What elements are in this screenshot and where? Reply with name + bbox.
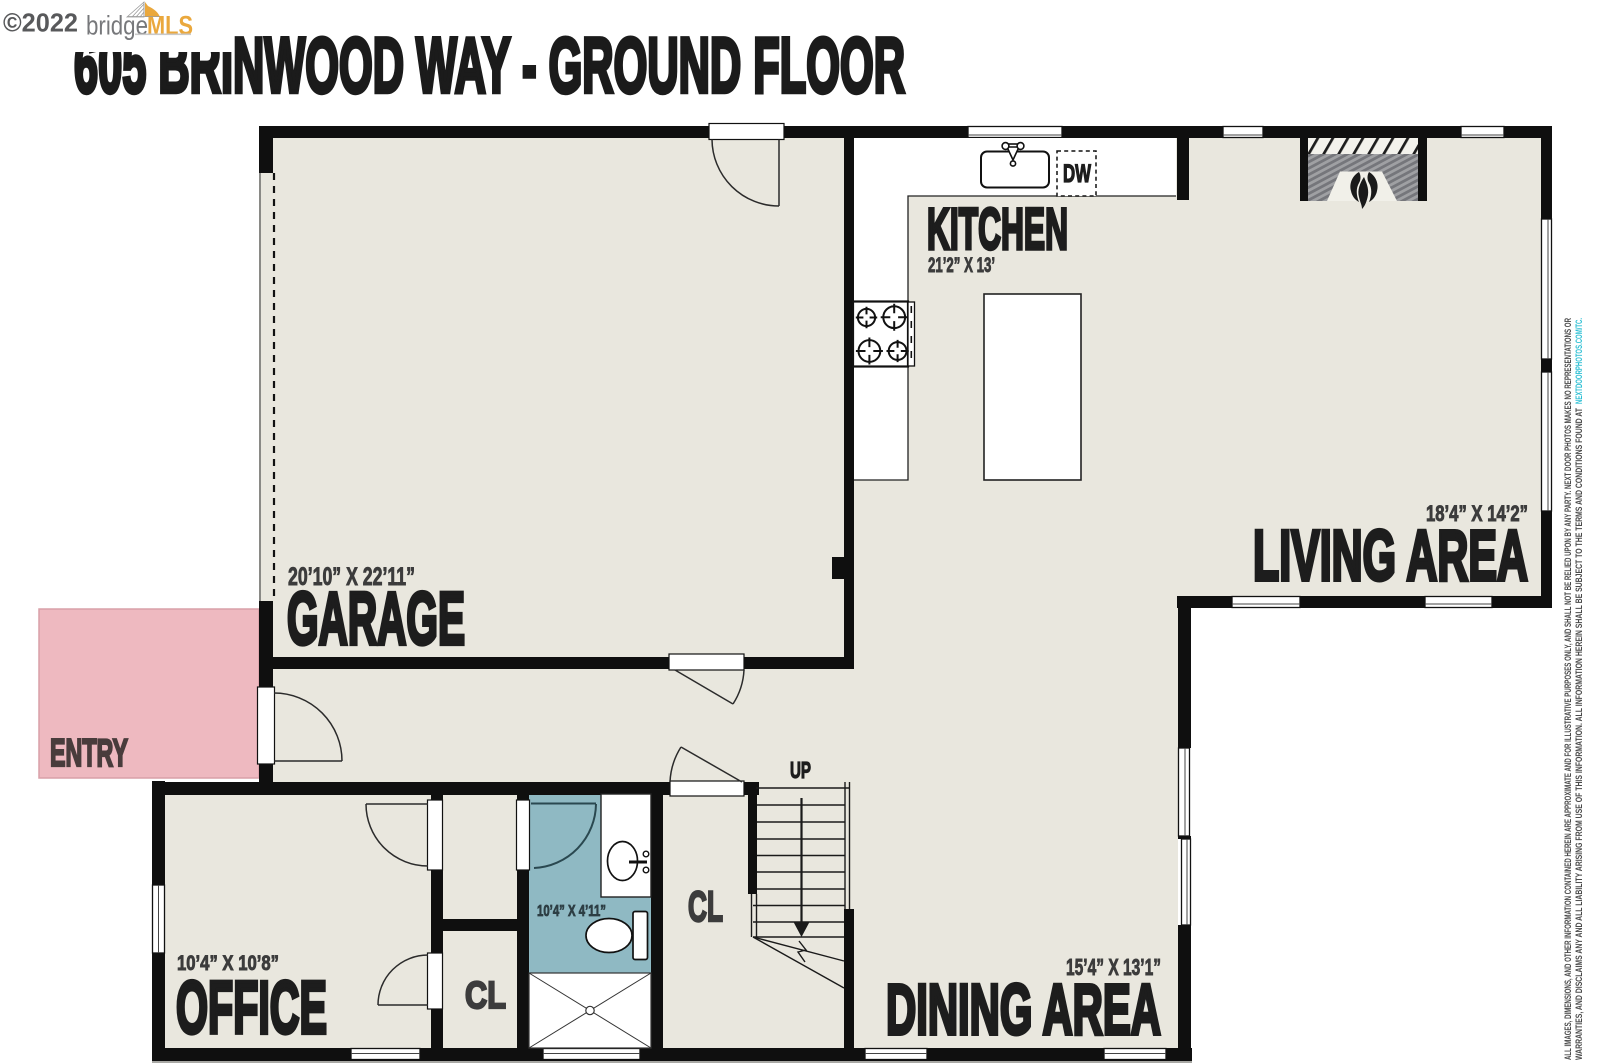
svg-text:ALL IMAGES, DIMENSIONS, AND OT: ALL IMAGES, DIMENSIONS, AND OTHER INFORM… xyxy=(1563,318,1574,1060)
svg-text:NEXTDOORPHOTOS.COM/TC.: NEXTDOORPHOTOS.COM/TC. xyxy=(1574,318,1585,404)
svg-text:KITCHEN: KITCHEN xyxy=(927,197,1068,262)
svg-text:20’10” X 22’11”: 20’10” X 22’11” xyxy=(288,563,415,591)
svg-text:10’4” X 10’8”: 10’4” X 10’8” xyxy=(177,952,279,975)
svg-text:10’4” X 4’11”: 10’4” X 4’11” xyxy=(537,903,606,920)
svg-text:21’2” X 13’: 21’2” X 13’ xyxy=(928,254,995,277)
svg-text:ENTRY: ENTRY xyxy=(50,732,128,775)
svg-text:CL: CL xyxy=(465,975,506,1017)
svg-text:UP: UP xyxy=(790,757,811,783)
svg-text:18’4” X 14’2”: 18’4” X 14’2” xyxy=(1426,501,1528,526)
svg-text:DINING AREA: DINING AREA xyxy=(886,971,1161,1050)
svg-text:LIVING AREA: LIVING AREA xyxy=(1253,517,1528,596)
svg-text:©2022: ©2022 xyxy=(3,8,78,38)
svg-text:bridge: bridge xyxy=(86,11,148,41)
svg-text:OFFICE: OFFICE xyxy=(176,966,327,1049)
svg-text:WARRANTIES, AND DISCLAIMS ANY: WARRANTIES, AND DISCLAIMS ANY AND ALL LI… xyxy=(1574,408,1585,1060)
svg-text:DW: DW xyxy=(1063,160,1091,188)
svg-text:15’4” X 13’1”: 15’4” X 13’1” xyxy=(1066,954,1161,980)
svg-text:CL: CL xyxy=(688,883,723,931)
